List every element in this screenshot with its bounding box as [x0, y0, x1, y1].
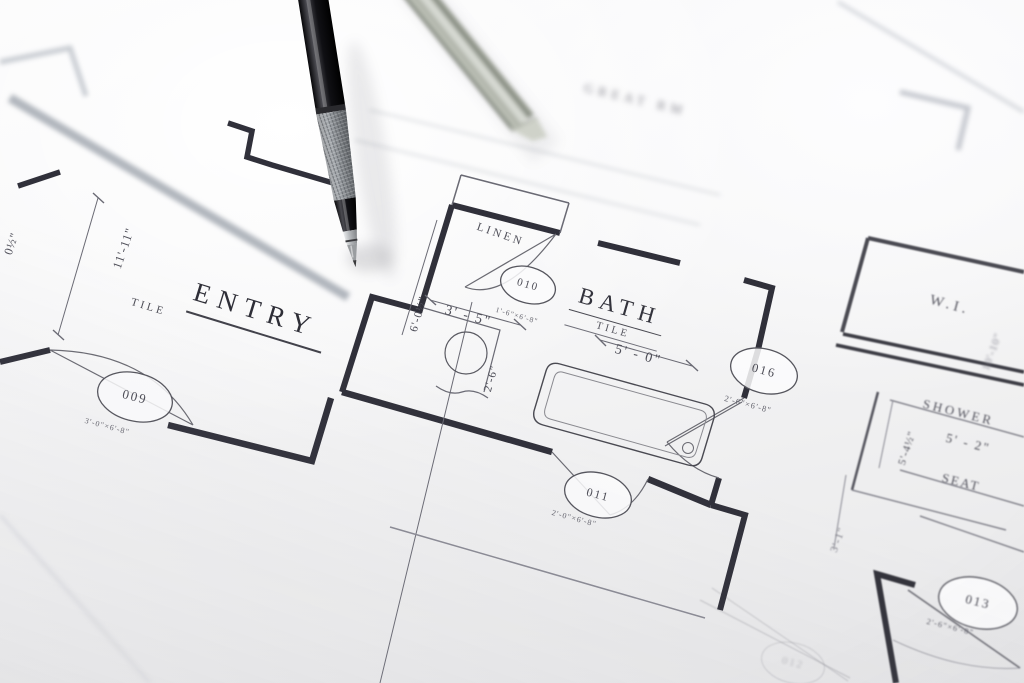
- drafting-tools-overlay: [0, 0, 1024, 683]
- scale-ruler: [385, 0, 550, 152]
- blueprint-photo: GREAT RM ENTRY TILE LINEN BATH TILE W.I.…: [0, 0, 1024, 683]
- pencil-ferrule: [343, 230, 359, 246]
